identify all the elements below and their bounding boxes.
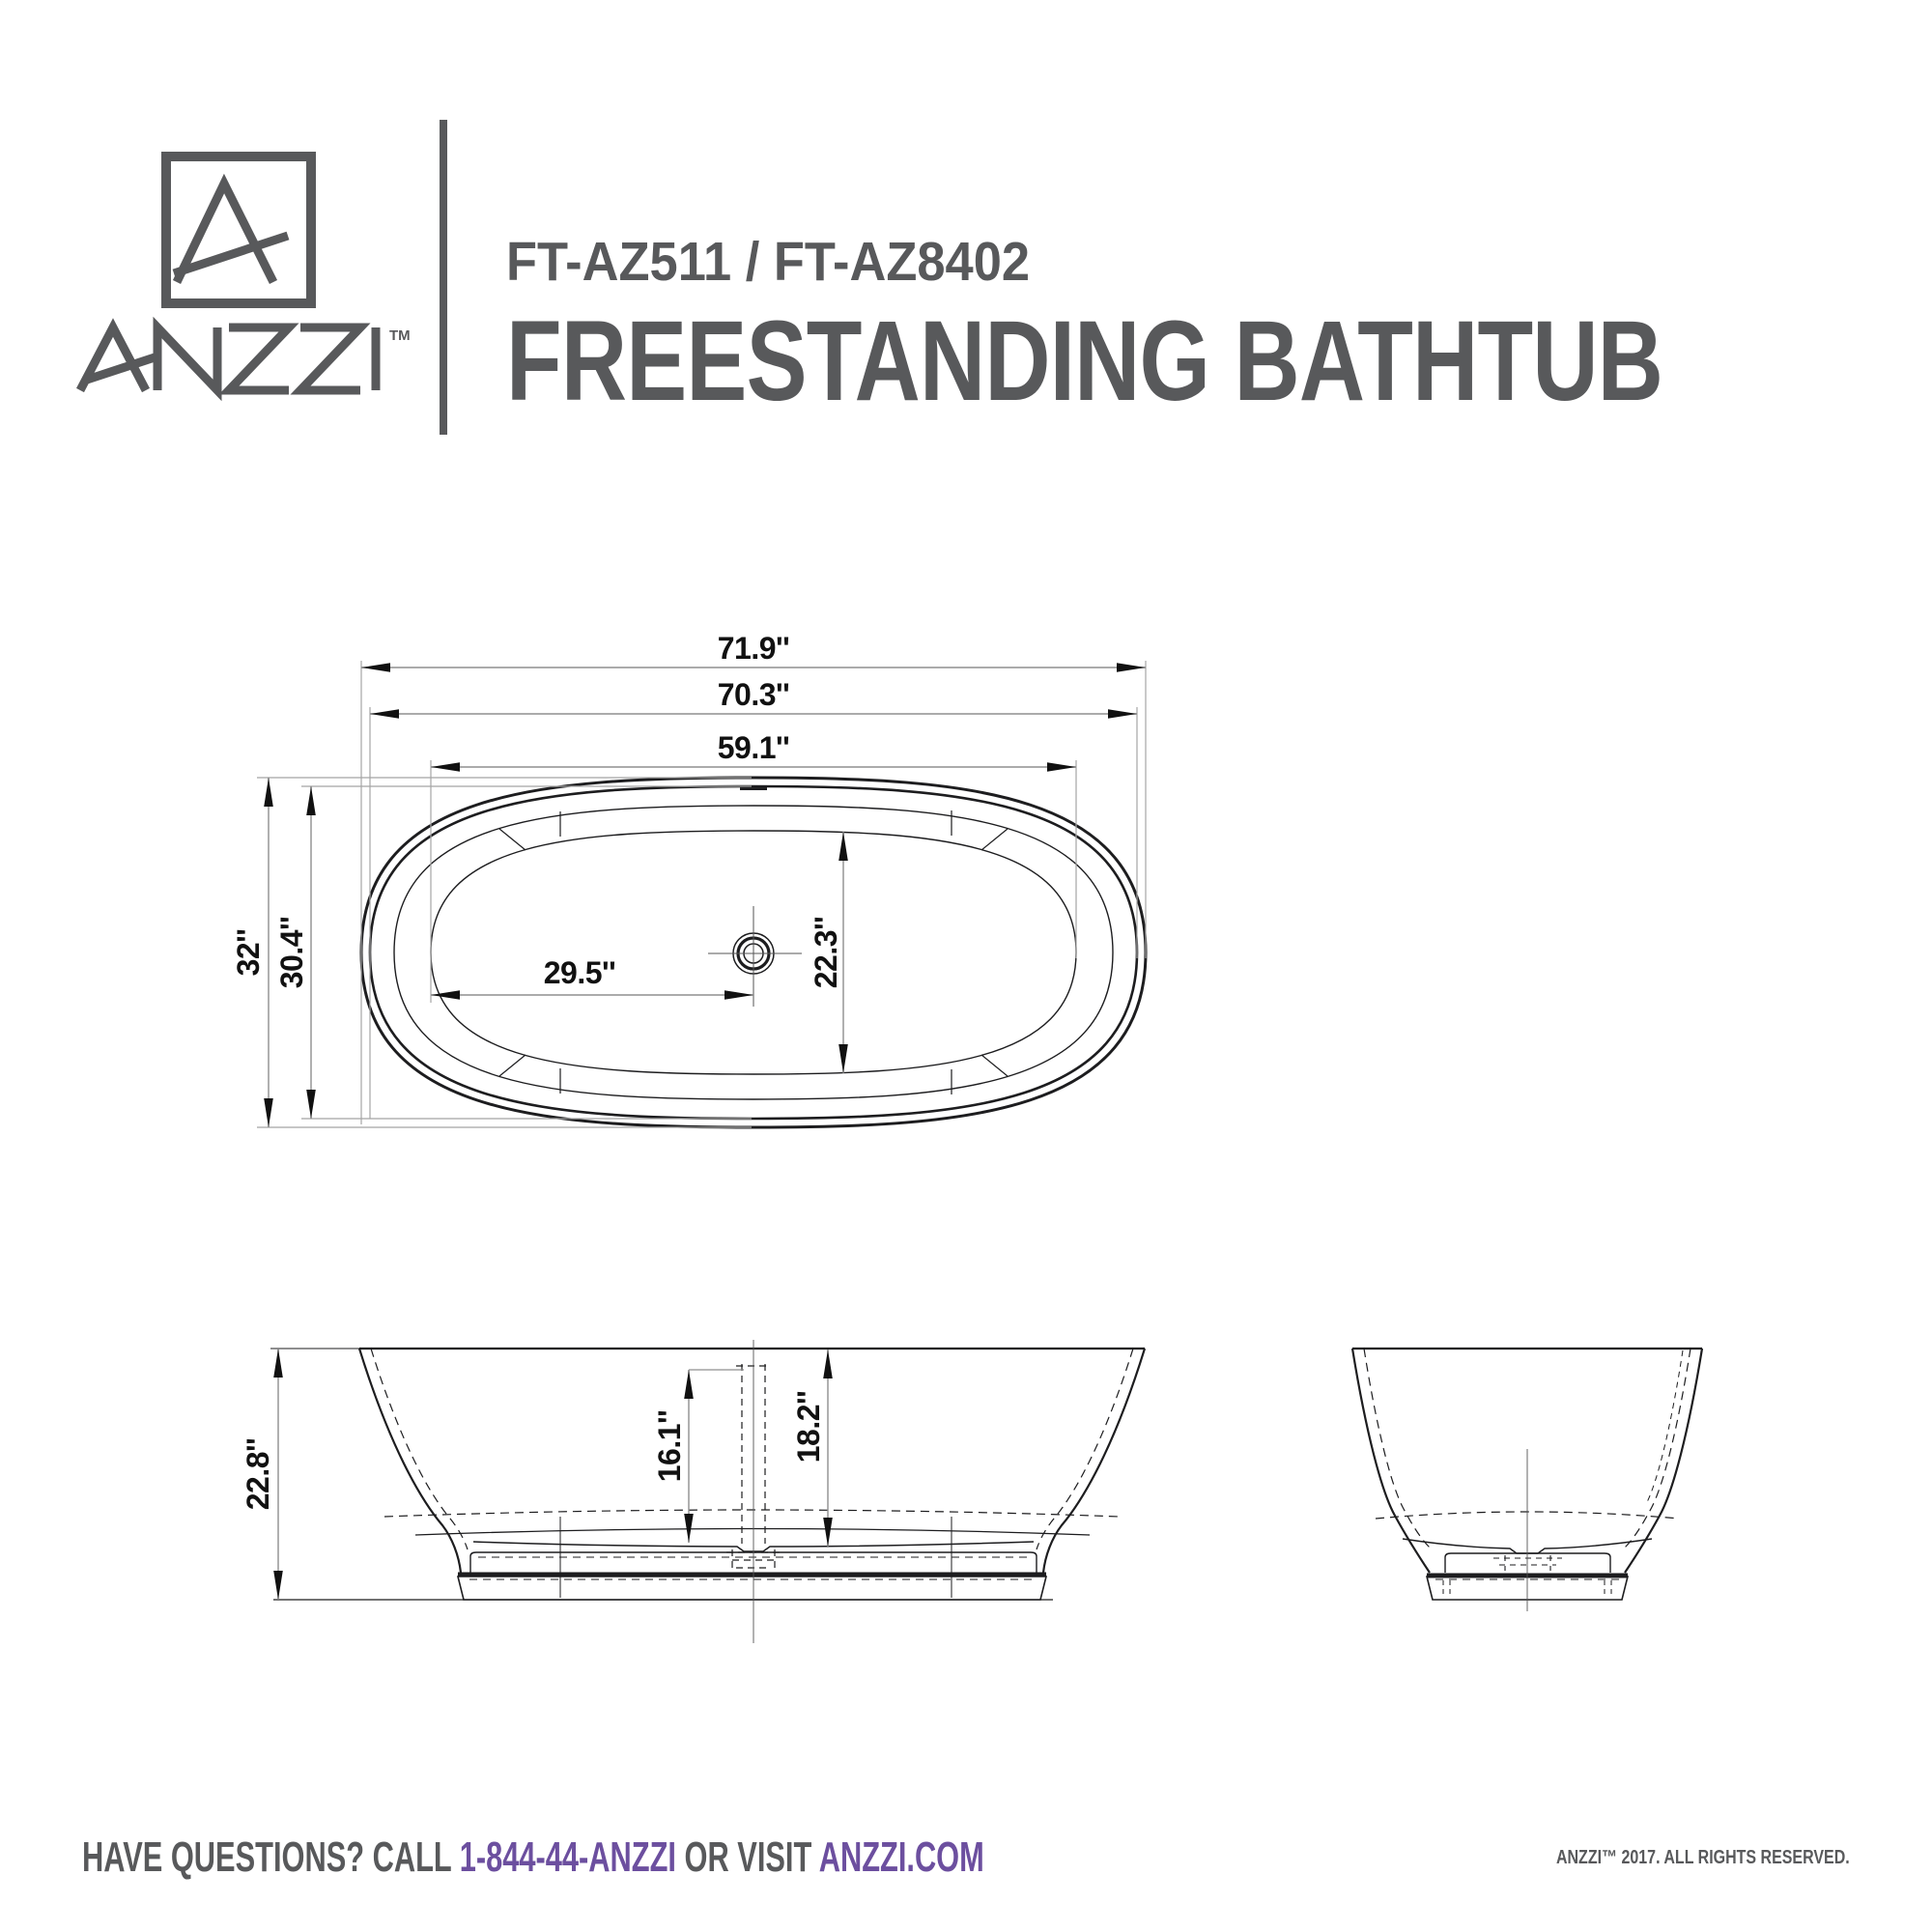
dim-overall-width: 32'': [231, 778, 269, 1127]
dim-label: 59.1'': [718, 730, 790, 765]
dim-rim-to-floor: 18.2'': [791, 1350, 828, 1547]
top-view-drawing: [361, 778, 1146, 1127]
footer-contact: HAVE QUESTIONS? CALL 1-844-44-ANZZI OR V…: [82, 1833, 984, 1882]
dim-basin-length: 59.1'': [431, 730, 1076, 767]
side-view-drawing: [270, 1340, 1145, 1643]
dim-label: 18.2'': [791, 1391, 826, 1463]
dim-drain-from-end: 29.5'': [431, 955, 753, 995]
dim-deck-length: 70.3'': [370, 677, 1137, 714]
dim-deck-width: 30.4'': [274, 786, 311, 1119]
footer-site-link[interactable]: ANZZI.COM: [819, 1833, 984, 1881]
dim-overall-height: 22.8'': [241, 1349, 278, 1600]
footer-call-text: HAVE QUESTIONS? CALL: [82, 1833, 451, 1881]
dim-label: 22.8'': [241, 1438, 275, 1511]
dim-basin-width: 22.3'': [809, 832, 843, 1073]
drain-hidden-lines: [1493, 1555, 1562, 1571]
dim-label: 70.3'': [718, 677, 790, 712]
dim-label: 30.4'': [274, 917, 309, 989]
footer-phone-link[interactable]: 1-844-44-ANZZI: [460, 1833, 676, 1881]
spec-sheet: ANZZI TM FT-AZ511 / FT-AZ8402 FREESTANDI…: [0, 0, 1932, 1932]
drain-icon: [708, 906, 802, 1007]
copyright-notice: ANZZI™ 2017. ALL RIGHTS RESERVED.: [1556, 1847, 1850, 1869]
dim-label: 32'': [231, 929, 266, 977]
dim-label: 22.3'': [809, 917, 843, 989]
dim-label: 71.9'': [718, 631, 790, 666]
top-view-extension-lines: [257, 661, 1146, 1127]
dim-label: 29.5'': [544, 955, 616, 990]
end-view-drawing: [1352, 1349, 1702, 1611]
footer-or-visit-text: OR VISIT: [685, 1833, 812, 1881]
dim-label: 16.1'': [652, 1410, 687, 1483]
dim-overall-length: 71.9'': [361, 631, 1146, 668]
technical-drawing: 71.9'' 70.3'' 59.1'' 32'' 30.4'' 29.5'' …: [0, 0, 1932, 1932]
dim-floor-to-overflow: 16.1'': [652, 1370, 744, 1543]
